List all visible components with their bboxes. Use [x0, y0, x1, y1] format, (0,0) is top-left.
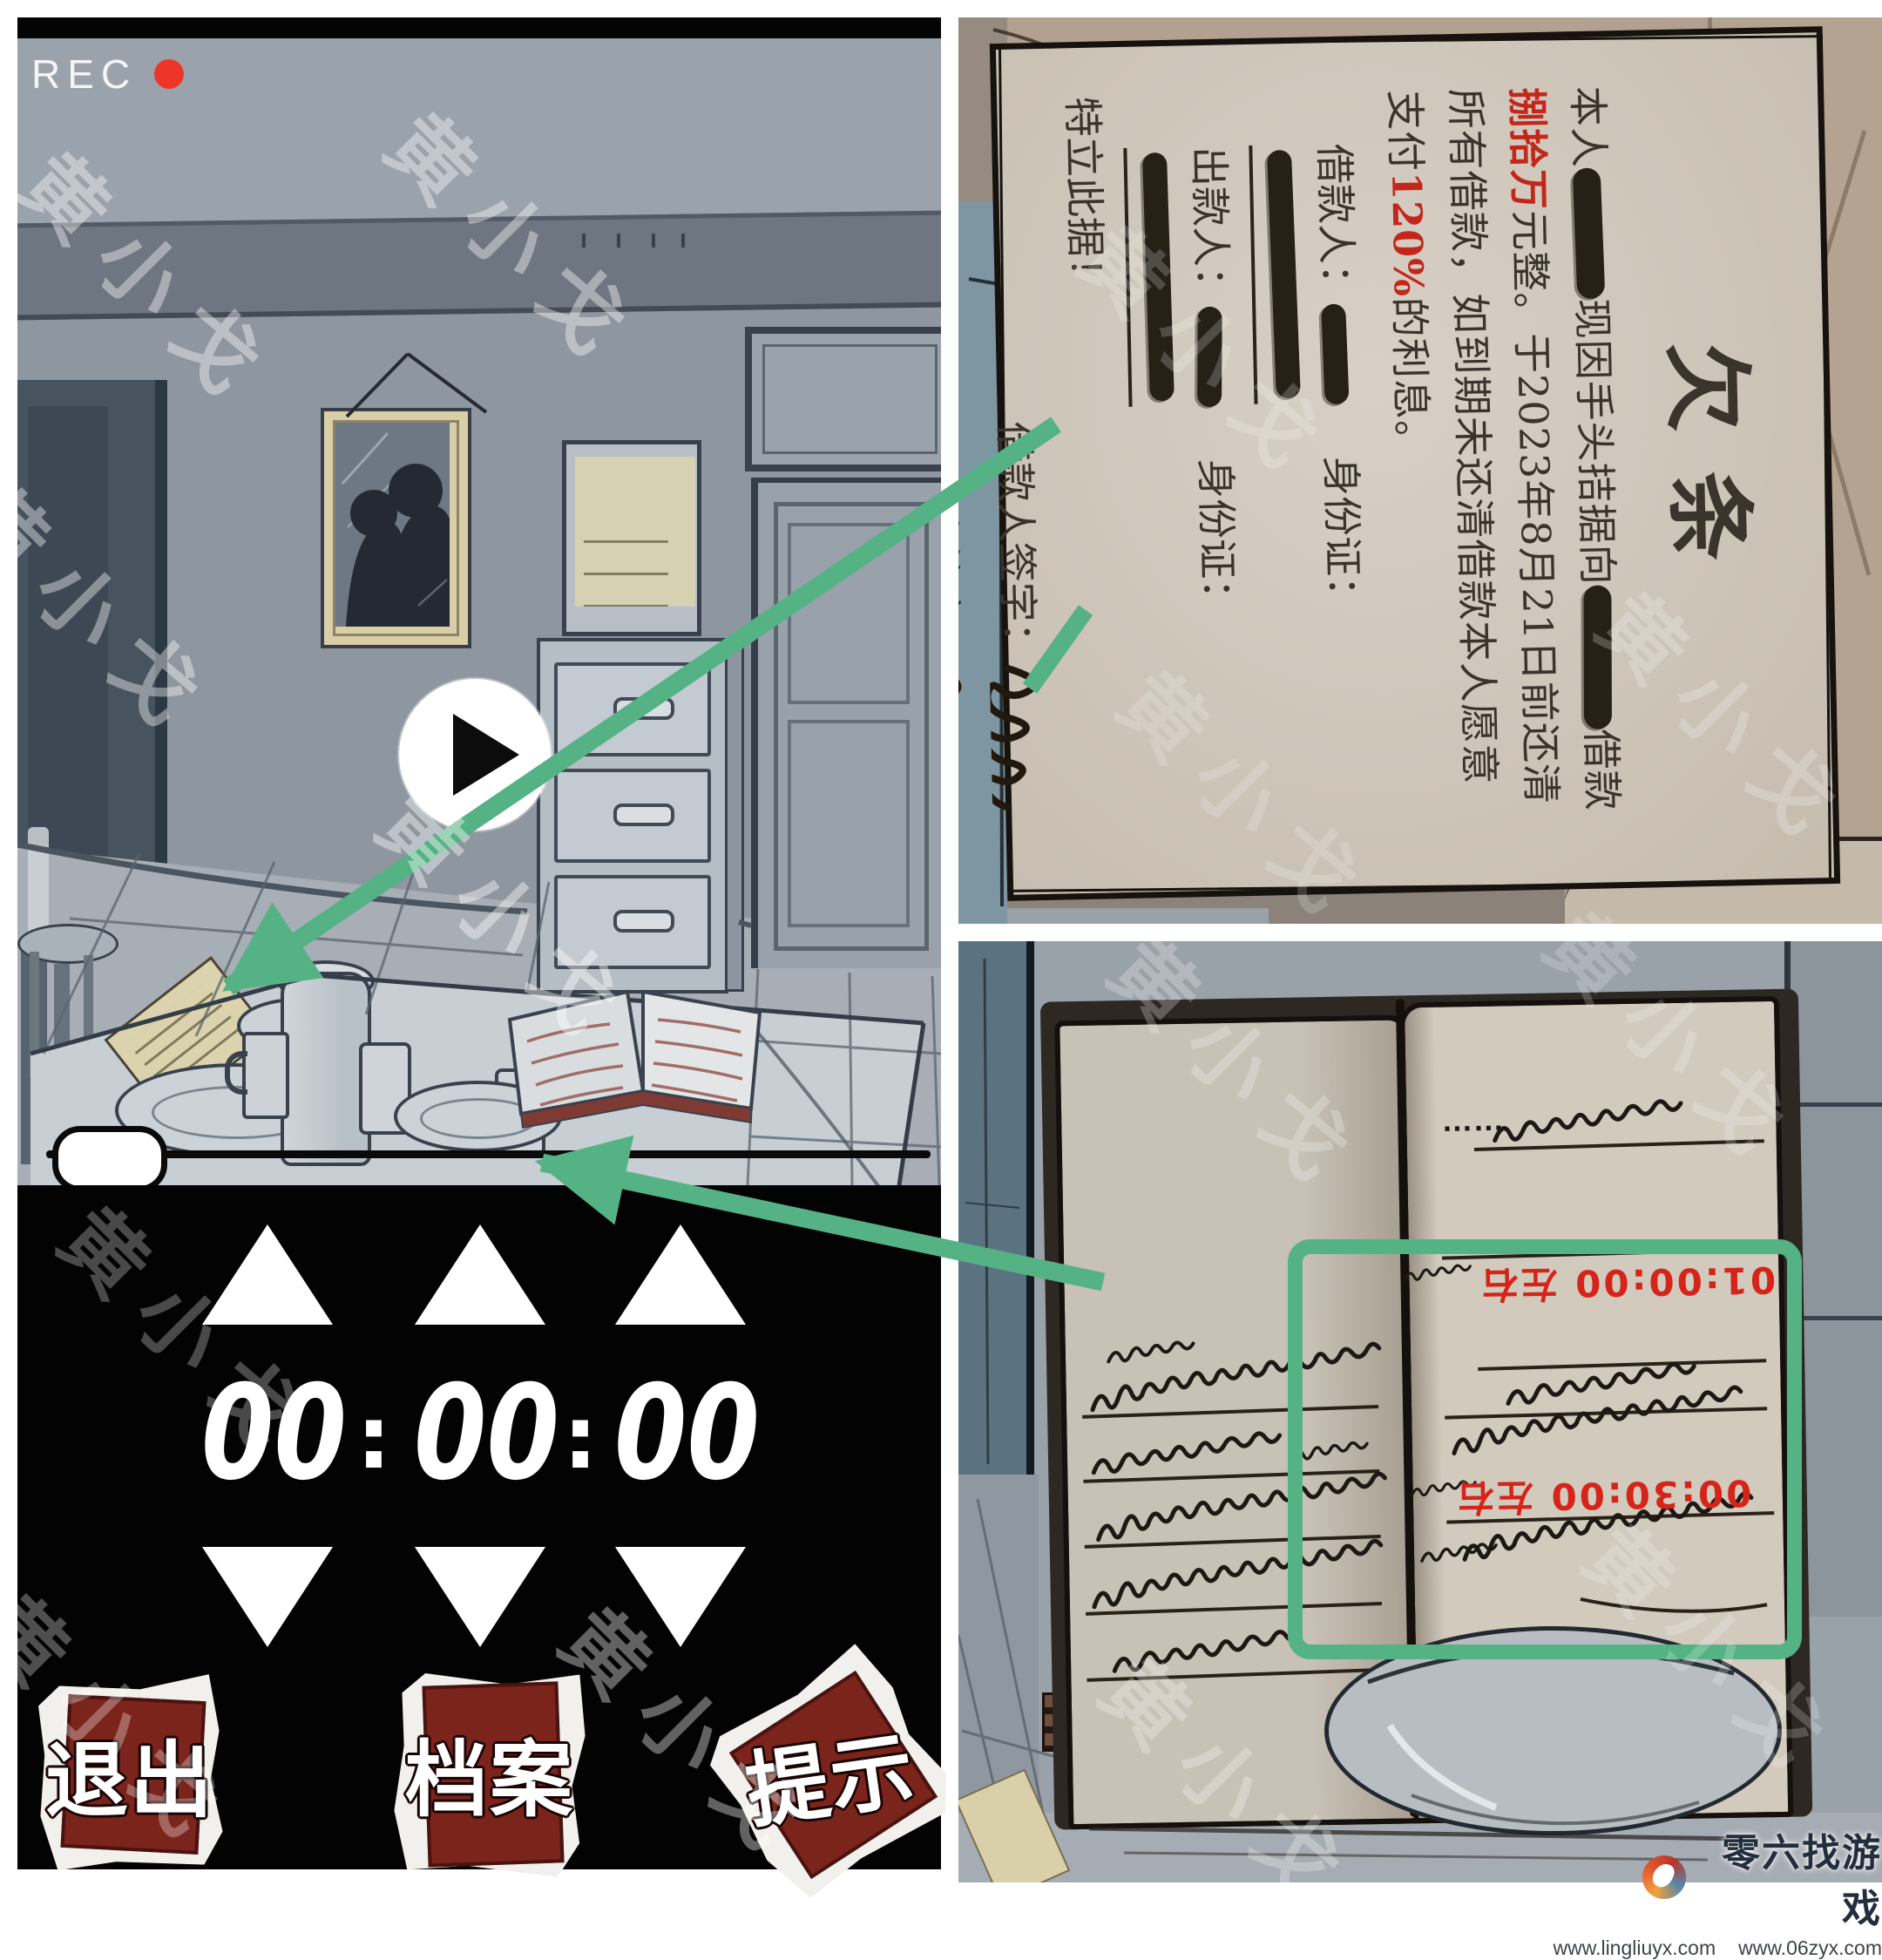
minutes-up-arrow[interactable] [415, 1224, 545, 1325]
iou-paragraph: 本人现因手头拮据向借款捌拾万元整。于2023年8月21日前还清所有借款，如到期未… [1373, 85, 1632, 826]
rec-label: REC [31, 51, 137, 98]
rec-indicator: REC [31, 51, 184, 98]
borrower-signature-row: 借款人签字： [985, 421, 1058, 834]
redacted-name [1322, 303, 1350, 404]
iou-title: 欠条 [1643, 82, 1787, 820]
lender-label: 出款人： [1186, 146, 1236, 307]
borrower-sign-label: 借款人签字： [988, 421, 1051, 662]
borrower-label: 借款人： [1311, 143, 1362, 304]
exit-button[interactable]: 退出 [33, 1673, 227, 1874]
camera-viewport-panel: REC 00 : 00 : 00 退出 档案 提示 [17, 17, 941, 1869]
redacted-name [1573, 167, 1606, 299]
site-logo-icon [1642, 1855, 1686, 1899]
notebook-zoom-panel: …… 01:00:00 左右 00:30:00 左右 [958, 941, 1882, 1882]
camera-controls-section: 00 : 00 : 00 退出 档案 提示 [17, 1185, 941, 1869]
id-label: 身份证： [1192, 458, 1242, 619]
timer-separator: : [348, 1390, 400, 1486]
hours-down-arrow[interactable] [202, 1547, 333, 1647]
play-button[interactable] [399, 679, 551, 831]
iou-paper: 欠条 本人现因手头拮据向借款捌拾万元整。于2023年8月21日前还清所有借款，如… [990, 26, 1840, 901]
highlight-box [1288, 1239, 1802, 1659]
timer-seconds: 00 [614, 1368, 747, 1499]
site-url: www.06zyx.com [1738, 1936, 1882, 1960]
declaration-row: 特立此据！ [1056, 96, 1129, 832]
exit-button-label: 退出 [33, 1673, 227, 1874]
signature-scribble [990, 661, 1058, 829]
site-name: 零六找游戏 [1693, 1821, 1882, 1933]
iou-document: 欠条 本人现因手头拮据向借款捌拾万元整。于2023年8月21日前还清所有借款，如… [997, 34, 1821, 882]
video-progress-bar[interactable] [46, 1150, 931, 1158]
hint-button-label: 提示 [701, 1648, 960, 1900]
iou-zoom-panel: 欠条 本人现因手头拮据向借款捌拾万元整。于2023年8月21日前还清所有借款，如… [958, 17, 1882, 924]
iou-text: 现因手头拮据向 [1568, 298, 1621, 586]
iou-text: 本人 [1564, 85, 1613, 168]
site-logo: 零六找游戏 www.lingliuyx.com www.06zyx.com [1642, 1821, 1882, 1960]
seconds-down-arrow[interactable] [615, 1547, 746, 1647]
borrower-row: 借款人： 身份证： [1249, 143, 1380, 829]
archive-button[interactable]: 档案 [390, 1666, 589, 1880]
iou-text: 借款 [1577, 729, 1626, 811]
scene-sketch-overlay [17, 38, 941, 1185]
minutes-down-arrow[interactable] [415, 1547, 545, 1647]
lender-row: 出款人： 身份证： [1124, 146, 1255, 831]
timer-minutes: 00 [414, 1368, 546, 1499]
progress-slider-handle[interactable] [52, 1126, 167, 1185]
redacted-id [1142, 153, 1175, 402]
timer-hours: 00 [201, 1368, 334, 1499]
hint-button[interactable]: 提示 [714, 1663, 945, 1885]
redacted-id [1267, 150, 1301, 399]
iou-text: 的利息。 [1385, 296, 1436, 461]
iou-interest: 120% [1383, 172, 1432, 298]
id-label: 身份证： [1317, 455, 1368, 616]
seconds-up-arrow[interactable] [615, 1224, 746, 1325]
room-scene: REC [17, 38, 941, 1185]
redacted-name [1197, 307, 1222, 407]
signature-scribble [958, 663, 979, 817]
rec-dot-icon [154, 59, 184, 89]
archive-button-label: 档案 [390, 1666, 589, 1880]
hours-up-arrow[interactable] [202, 1224, 333, 1325]
timer-separator: : [554, 1390, 606, 1486]
iou-amount: 捌拾万 [1503, 87, 1553, 211]
site-url: www.lingliuyx.com [1554, 1936, 1716, 1960]
redacted-name [1583, 586, 1612, 729]
